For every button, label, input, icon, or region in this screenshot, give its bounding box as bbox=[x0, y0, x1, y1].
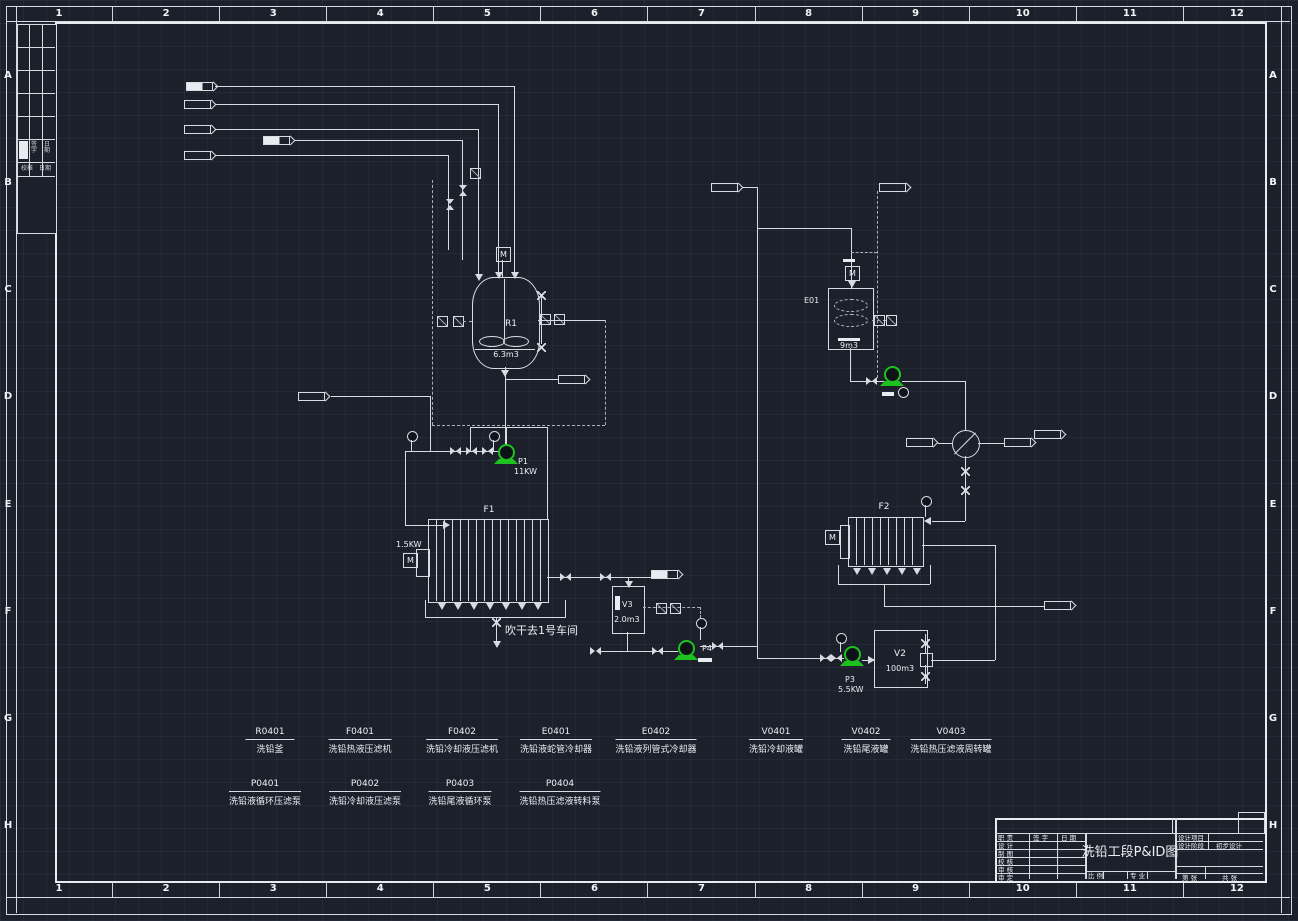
equipment-label: V0403 洗铅热压滤液周转罐 bbox=[910, 727, 991, 755]
equipment-code: E0401 bbox=[520, 727, 592, 740]
equipment-label: P0403 洗铅尾液循环泵 bbox=[428, 779, 491, 807]
valve-icon bbox=[652, 647, 663, 656]
flow-arrow bbox=[493, 641, 501, 648]
signal-line bbox=[851, 252, 877, 253]
revision-table-line bbox=[17, 116, 55, 117]
ruler-row-label: A bbox=[0, 22, 16, 129]
pipe-line bbox=[978, 443, 1004, 444]
filter-plate bbox=[864, 517, 865, 565]
pipe-line bbox=[295, 140, 462, 141]
instrument-box bbox=[874, 315, 885, 326]
equipment-code: P0404 bbox=[519, 779, 600, 792]
stream-flag bbox=[1004, 438, 1036, 447]
ruler-column-label: 3 bbox=[220, 882, 327, 897]
pump-label-bar bbox=[843, 259, 855, 262]
resp-header: 职 责 bbox=[998, 835, 1013, 842]
flow-arrow bbox=[454, 603, 462, 610]
pipe-line bbox=[884, 584, 885, 606]
ruler-top: 123456789101112 bbox=[6, 7, 1290, 21]
agitator-blade bbox=[503, 336, 529, 347]
cad-drawing-canvas: 123456789101112 123456789101112 ABCDEFGH… bbox=[0, 0, 1298, 921]
role-approve: 审 定 bbox=[998, 875, 1013, 882]
flow-arrow bbox=[518, 603, 526, 610]
equipment-name: 洗铅液列管式冷却器 bbox=[615, 745, 696, 755]
closed-valve-icon bbox=[537, 291, 546, 300]
signal-line bbox=[700, 607, 701, 618]
tank2-volume: 100m3 bbox=[886, 665, 914, 673]
closed-valve-icon bbox=[921, 639, 930, 648]
equipment-name: 洗铅热压滤液转料泵 bbox=[519, 797, 600, 807]
valve-icon bbox=[712, 642, 723, 651]
ruler-column-label: 1 bbox=[6, 7, 113, 21]
valve-icon bbox=[820, 654, 831, 663]
flow-arrow bbox=[438, 603, 446, 610]
scale-label: 比 例 bbox=[1088, 873, 1103, 880]
filter-plate bbox=[872, 517, 873, 565]
ruler-column-label: 12 bbox=[1184, 7, 1290, 21]
tank-V3 bbox=[612, 586, 645, 634]
stream-flag bbox=[711, 183, 743, 192]
pipe-line bbox=[965, 381, 966, 430]
ruler-row-label: B bbox=[1265, 129, 1281, 236]
note-blowdry: 吹干去1号车间 bbox=[505, 625, 578, 636]
valve-icon bbox=[590, 647, 601, 656]
flow-arrow bbox=[848, 281, 856, 288]
ruler-column-label: 9 bbox=[863, 7, 970, 21]
ruler-column-label: 6 bbox=[541, 882, 648, 897]
equipment-name: 洗铅冷却液压滤泵 bbox=[329, 797, 401, 807]
pump1-power: 11KW bbox=[514, 468, 537, 476]
flow-arrow bbox=[883, 568, 891, 575]
pipe-line bbox=[505, 379, 558, 380]
pipe-line bbox=[995, 545, 996, 660]
title-block-line bbox=[1127, 871, 1128, 879]
ruler-column-label: 3 bbox=[220, 7, 327, 21]
closed-valve-icon bbox=[961, 486, 970, 495]
equipment-label: P0402 洗铅冷却液压滤泵 bbox=[329, 779, 401, 807]
stream-flag bbox=[906, 438, 938, 447]
ruler-column-label: 4 bbox=[327, 7, 434, 21]
ruler-column-label: 11 bbox=[1077, 7, 1184, 21]
filter-plate bbox=[452, 519, 453, 601]
ruler-column-label: 4 bbox=[327, 882, 434, 897]
filter-plate bbox=[524, 519, 525, 601]
revision-sign-label: 签字 bbox=[31, 142, 39, 154]
ruler-column-label: 2 bbox=[113, 7, 220, 21]
pipe-line bbox=[838, 565, 839, 584]
stream-flag bbox=[184, 100, 216, 109]
valve-icon bbox=[450, 447, 461, 456]
flow-arrow bbox=[853, 568, 861, 575]
instrument-icon bbox=[407, 431, 418, 442]
pipe-line bbox=[430, 396, 431, 451]
sheet-label: 第 张 bbox=[1182, 875, 1197, 882]
pipe-line bbox=[931, 660, 995, 661]
filter-plate bbox=[508, 519, 509, 601]
valve-icon bbox=[600, 573, 611, 582]
equipment-code: P0401 bbox=[229, 779, 301, 792]
total-label: 共 张 bbox=[1222, 875, 1237, 882]
signal-line bbox=[925, 505, 926, 517]
equipment-code: R0401 bbox=[245, 727, 294, 740]
signal-line bbox=[432, 180, 433, 425]
pump-label-bar bbox=[882, 392, 894, 396]
flow-arrow bbox=[502, 603, 510, 610]
signal-line bbox=[411, 440, 412, 451]
instrument-box bbox=[670, 603, 681, 614]
level-gauge bbox=[615, 596, 620, 610]
equipment-label: R0401 洗铅釜 bbox=[245, 727, 294, 755]
ruler-row-label: D bbox=[1265, 343, 1281, 450]
condenser-volume: 9m3 bbox=[840, 342, 858, 350]
equipment-name: 洗铅液循环压滤泵 bbox=[229, 797, 301, 807]
ruler-column-label: 7 bbox=[648, 882, 755, 897]
pipe-line bbox=[506, 427, 507, 444]
pipe-line bbox=[884, 606, 1044, 607]
filter-plate bbox=[492, 519, 493, 601]
date-header: 日 期 bbox=[1061, 835, 1076, 842]
filter1-power: 1.5KW bbox=[396, 541, 422, 549]
pipe-line bbox=[216, 155, 448, 156]
filter-plate bbox=[500, 519, 501, 601]
ruler-row-label: G bbox=[1265, 665, 1281, 772]
ruler-row-label: D bbox=[0, 343, 16, 450]
pump-icon-p4 bbox=[678, 640, 698, 660]
signal-line bbox=[840, 642, 841, 652]
ruler-column-label: 11 bbox=[1077, 882, 1184, 897]
pipe-line bbox=[922, 545, 995, 546]
instrument-box bbox=[437, 316, 448, 327]
stream-flag bbox=[1034, 430, 1066, 439]
revision-table-line bbox=[17, 70, 55, 71]
valve-icon bbox=[445, 199, 454, 210]
signal-line bbox=[493, 440, 494, 451]
motor-box: M bbox=[825, 530, 840, 545]
motor-box: M bbox=[845, 266, 860, 281]
filter-plate bbox=[516, 519, 517, 601]
ruler-row-label: C bbox=[1265, 236, 1281, 343]
signal-line bbox=[605, 320, 606, 425]
pipe-line bbox=[757, 228, 851, 229]
ruler-row-label: E bbox=[0, 451, 16, 558]
valve-icon bbox=[831, 654, 842, 663]
filter-plate bbox=[856, 517, 857, 565]
equipment-code: V0402 bbox=[841, 727, 890, 740]
equipment-label: P0404 洗铅热压滤液转料泵 bbox=[519, 779, 600, 807]
pipe-line bbox=[547, 427, 548, 519]
equipment-label: V0402 洗铅尾液罐 bbox=[841, 727, 890, 755]
ruler-row-label: H bbox=[0, 772, 16, 879]
equipment-name: 洗铅尾液罐 bbox=[843, 745, 888, 755]
pipe-line bbox=[502, 260, 503, 277]
stream-flag bbox=[651, 570, 683, 579]
title-block-corner-cell bbox=[1238, 812, 1265, 834]
flow-arrow bbox=[924, 517, 931, 525]
closed-valve-icon bbox=[492, 618, 501, 627]
stream-flag bbox=[184, 151, 216, 160]
filter-plate bbox=[896, 517, 897, 565]
ruler-left: ABCDEFGH bbox=[0, 22, 16, 879]
closed-valve-icon bbox=[961, 467, 970, 476]
ruler-row-label: F bbox=[1265, 558, 1281, 665]
flow-arrow bbox=[470, 603, 478, 610]
instrument-box bbox=[470, 168, 481, 179]
filter-plate bbox=[444, 519, 445, 601]
pipe-line bbox=[938, 443, 952, 444]
equipment-label: F0401 洗铅热液压滤机 bbox=[328, 727, 391, 755]
reactor-volume: 6.3m3 bbox=[493, 351, 519, 359]
flow-arrow bbox=[913, 568, 921, 575]
filter1-tag: F1 bbox=[484, 506, 495, 515]
pipe-line bbox=[215, 86, 514, 87]
revision-table-line bbox=[17, 176, 55, 177]
pipe-line bbox=[425, 600, 426, 617]
valve-icon bbox=[560, 573, 571, 582]
equipment-label: E0401 洗铅液蛇管冷却器 bbox=[520, 727, 592, 755]
stream-flag bbox=[184, 125, 216, 134]
revision-table-marker bbox=[19, 141, 28, 159]
filter-plate bbox=[912, 517, 913, 565]
filter-plate bbox=[532, 519, 533, 601]
ruler-column-label: 5 bbox=[434, 882, 541, 897]
title-block-line bbox=[1147, 871, 1148, 879]
signal-line bbox=[432, 425, 605, 426]
pipe-line bbox=[470, 427, 471, 451]
instrument-icon bbox=[489, 431, 500, 442]
pipe-line bbox=[216, 104, 498, 105]
valve-icon bbox=[466, 447, 477, 456]
equipment-code: P0403 bbox=[428, 779, 491, 792]
filter-plate bbox=[476, 519, 477, 601]
equipment-label: V0401 洗铅冷却液罐 bbox=[749, 727, 803, 755]
equipment-code: E0402 bbox=[615, 727, 696, 740]
equipment-label: F0402 洗铅冷却液压滤机 bbox=[426, 727, 498, 755]
ruler-line bbox=[1281, 6, 1282, 913]
pump3-tag: P3 bbox=[845, 676, 855, 684]
stream-flag bbox=[558, 375, 590, 384]
ruler-row-label: E bbox=[1265, 451, 1281, 558]
instrument-icon bbox=[921, 496, 932, 507]
revision-table bbox=[17, 24, 57, 234]
pipe-line bbox=[565, 600, 566, 617]
coil-icon bbox=[834, 299, 868, 312]
closed-valve-icon bbox=[921, 672, 930, 681]
ruler-column-label: 2 bbox=[113, 882, 220, 897]
filter-press-F1 bbox=[428, 519, 549, 603]
title-block-line bbox=[1103, 871, 1104, 879]
title-block-line bbox=[1175, 866, 1263, 867]
pipe-line bbox=[930, 565, 931, 584]
equipment-label: P0401 洗铅液循环压滤泵 bbox=[229, 779, 301, 807]
pipe-line bbox=[757, 646, 758, 658]
ruler-column-label: 10 bbox=[970, 882, 1077, 897]
signal-line bbox=[877, 191, 878, 378]
ruler-row-label: B bbox=[0, 129, 16, 236]
filter-plate bbox=[540, 519, 541, 601]
coil-icon bbox=[834, 314, 868, 327]
project-label: 设计项目 bbox=[1178, 835, 1204, 842]
pipe-line bbox=[757, 187, 758, 646]
pump1-tag: P1 bbox=[518, 458, 528, 466]
agitator-blade bbox=[479, 336, 505, 347]
pipe-line bbox=[538, 320, 605, 321]
filter-plate bbox=[888, 517, 889, 565]
ruler-bottom: 123456789101112 bbox=[6, 882, 1290, 897]
ruler-column-label: 7 bbox=[648, 7, 755, 21]
instrument-icon bbox=[898, 387, 909, 398]
equipment-code: P0402 bbox=[329, 779, 401, 792]
ruler-row-label: G bbox=[0, 665, 16, 772]
stream-flag bbox=[298, 392, 330, 401]
revision-date-label: 日期 bbox=[44, 142, 52, 154]
ruler-row-label: F bbox=[0, 558, 16, 665]
equipment-name: 洗铅尾液循环泵 bbox=[428, 797, 491, 807]
stream-flag bbox=[1044, 601, 1076, 610]
equipment-name: 洗铅热液压滤机 bbox=[328, 745, 391, 755]
flow-arrow bbox=[534, 603, 542, 610]
ruler-column-label: 1 bbox=[6, 882, 113, 897]
title-block-line bbox=[1208, 833, 1209, 849]
revision-table-line bbox=[17, 93, 55, 94]
filter-plate bbox=[484, 519, 485, 601]
revision-table-line bbox=[17, 139, 55, 140]
tank3-tag: V3 bbox=[622, 601, 633, 609]
equipment-code: F0401 bbox=[328, 727, 391, 740]
ruler-column-label: 8 bbox=[756, 882, 863, 897]
motor-box: M bbox=[496, 247, 511, 262]
pipe-line bbox=[932, 521, 965, 522]
stage-value: 初步设计 bbox=[1216, 843, 1242, 850]
filter-plate bbox=[468, 519, 469, 601]
pump-label-bar bbox=[698, 658, 712, 662]
instrument-box bbox=[656, 603, 667, 614]
role-review: 审 核 bbox=[998, 867, 1013, 874]
equipment-name: 洗铅冷却液罐 bbox=[749, 745, 803, 755]
ruler-column-label: 12 bbox=[1184, 882, 1290, 897]
pipe-line bbox=[470, 427, 547, 428]
pipe-line bbox=[331, 396, 430, 397]
flow-arrow bbox=[486, 603, 494, 610]
filter2-tag: F2 bbox=[879, 503, 890, 512]
valve-icon bbox=[458, 185, 467, 196]
stream-flag bbox=[879, 183, 911, 192]
filter-drive-housing bbox=[416, 549, 430, 577]
filter-plate bbox=[436, 519, 437, 601]
revision-table-line bbox=[17, 47, 55, 48]
pipe-line bbox=[514, 86, 515, 272]
pipe-line bbox=[627, 632, 628, 651]
title-block-line bbox=[1205, 866, 1206, 879]
pipe-line bbox=[478, 129, 479, 274]
role-check: 校 核 bbox=[998, 859, 1013, 866]
pump3-power: 5.5KW bbox=[838, 686, 864, 694]
revision-table-line bbox=[17, 162, 55, 163]
equipment-name: 洗铅热压滤液周转罐 bbox=[910, 745, 991, 755]
signal-line bbox=[700, 627, 701, 640]
valve-icon bbox=[482, 447, 493, 456]
sign-header: 签 字 bbox=[1033, 835, 1048, 842]
valve-icon bbox=[866, 377, 877, 386]
equipment-code: V0401 bbox=[749, 727, 803, 740]
flow-arrow bbox=[868, 568, 876, 575]
ruler-column-label: 5 bbox=[434, 7, 541, 21]
closed-valve-icon bbox=[537, 343, 546, 352]
equipment-name: 洗铅液蛇管冷却器 bbox=[520, 745, 592, 755]
revision-check-label: 校核 bbox=[21, 166, 35, 172]
pump-icon-e01 bbox=[884, 366, 904, 386]
discipline-label: 专 业 bbox=[1130, 873, 1145, 880]
pipe-line bbox=[902, 381, 965, 382]
pipe-line bbox=[700, 646, 757, 647]
tank2-tag: V2 bbox=[894, 650, 906, 659]
pump-icon-p1 bbox=[498, 444, 518, 464]
reactor-tag: R1 bbox=[505, 320, 517, 329]
tank3-volume: 2.0m3 bbox=[614, 616, 640, 624]
filter-plate bbox=[904, 517, 905, 565]
pipe-line bbox=[850, 348, 851, 381]
stream-flag bbox=[186, 82, 218, 91]
equipment-name: 洗铅冷却液压滤机 bbox=[426, 745, 498, 755]
title-block-line bbox=[1172, 818, 1173, 833]
filter-plate bbox=[880, 517, 881, 565]
drawing-title: 洗铅工段P&ID图 bbox=[1082, 846, 1179, 859]
instrument-icon bbox=[696, 618, 707, 629]
ruler-right: ABCDEFGH bbox=[1265, 22, 1281, 879]
ruler-line bbox=[6, 897, 1290, 898]
ruler-row-label: C bbox=[0, 236, 16, 343]
ruler-column-label: 6 bbox=[541, 7, 648, 21]
instrument-box bbox=[886, 315, 897, 326]
stream-flag bbox=[263, 136, 295, 145]
pipe-line bbox=[743, 187, 757, 188]
ruler-column-label: 10 bbox=[970, 7, 1077, 21]
equipment-name: 洗铅釜 bbox=[256, 745, 283, 755]
equipment-code: V0403 bbox=[910, 727, 991, 740]
ruler-column-label: 9 bbox=[863, 882, 970, 897]
pipe-line bbox=[541, 296, 542, 344]
pipe-line bbox=[405, 451, 406, 525]
revision-date2-label: 日期 bbox=[39, 166, 53, 172]
pump-icon-p3 bbox=[844, 646, 864, 666]
role-design: 设 计 bbox=[998, 843, 1013, 850]
flow-arrow bbox=[898, 568, 906, 575]
equipment-label: E0402 洗铅液列管式冷却器 bbox=[615, 727, 696, 755]
signal-line bbox=[463, 321, 472, 322]
equipment-code: F0402 bbox=[426, 727, 498, 740]
stage-label: 设计阶段 bbox=[1178, 843, 1204, 850]
ruler-row-label: H bbox=[1265, 772, 1281, 879]
ruler-row-label: A bbox=[1265, 22, 1281, 129]
filter-plate bbox=[460, 519, 461, 601]
condenser-tag: E01 bbox=[804, 297, 819, 305]
role-draw: 制 图 bbox=[998, 851, 1013, 858]
pipe-line bbox=[600, 651, 678, 652]
instrument-icon bbox=[836, 633, 847, 644]
agitator-shaft bbox=[504, 279, 505, 339]
pipe-line bbox=[216, 129, 478, 130]
ruler-column-label: 8 bbox=[756, 7, 863, 21]
cooler-E0402-icon bbox=[952, 430, 980, 458]
pipe-line bbox=[462, 140, 463, 260]
filter-drive-housing bbox=[840, 525, 850, 559]
